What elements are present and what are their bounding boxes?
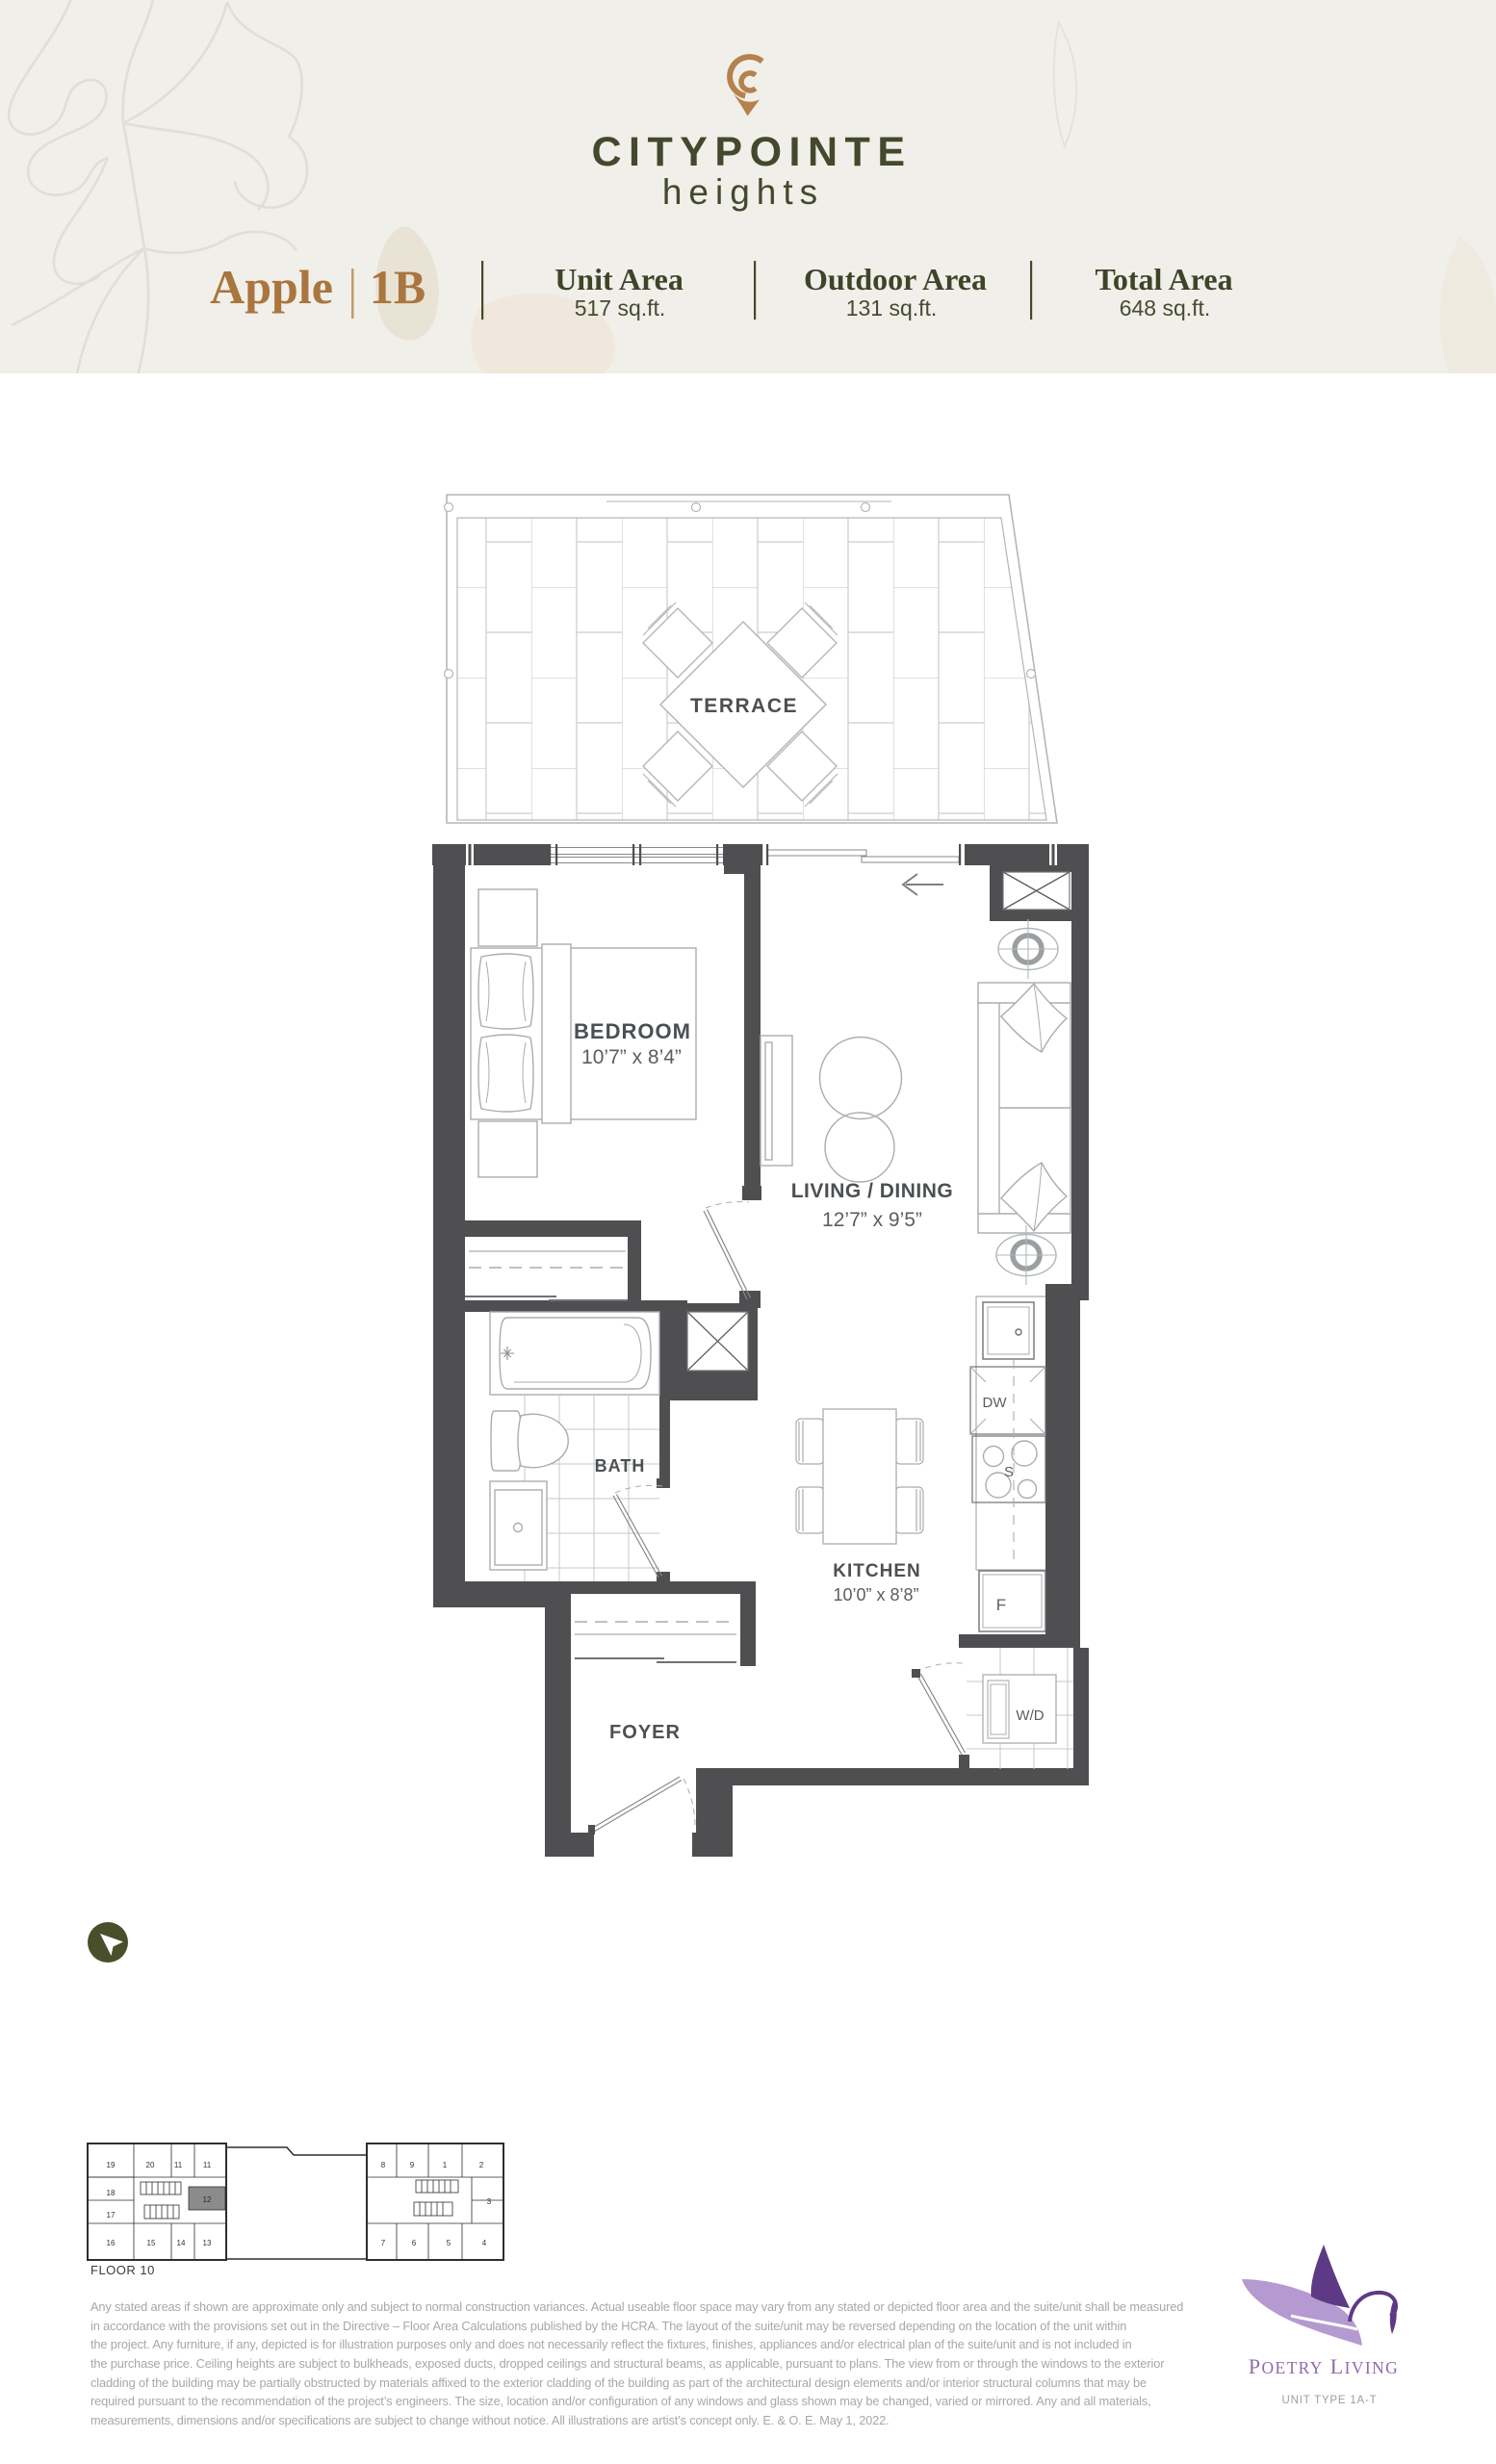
svg-text:LIVING / DINING: LIVING / DINING (791, 1180, 954, 1202)
svg-text:DW: DW (983, 1395, 1008, 1411)
svg-text:5: 5 (447, 2239, 451, 2247)
svg-text:cladding of the building may b: cladding of the building may be partiall… (90, 2375, 1147, 2390)
svg-text:2: 2 (479, 2161, 484, 2169)
svg-text:6: 6 (412, 2239, 417, 2247)
svg-text:CITYPOINTE: CITYPOINTE (591, 129, 912, 175)
svg-text:Unit Area: Unit Area (555, 262, 684, 296)
svg-text:BEDROOM: BEDROOM (574, 1019, 691, 1043)
svg-text:Total Area: Total Area (1095, 262, 1232, 296)
svg-text:Any stated areas if shown are: Any stated areas if shown are approximat… (90, 2299, 1183, 2314)
svg-text:9: 9 (410, 2161, 415, 2169)
svg-text:7: 7 (381, 2239, 386, 2247)
svg-text:in accordance with the provisi: in accordance with the provisions set ou… (90, 2319, 1126, 2333)
svg-text:F: F (996, 1596, 1006, 1614)
svg-text:UNIT TYPE 1A-T: UNIT TYPE 1A-T (1282, 2395, 1378, 2406)
svg-text:20: 20 (146, 2161, 155, 2169)
svg-text:16: 16 (107, 2239, 116, 2247)
svg-text:POETRY LIVING: POETRY LIVING (1249, 2354, 1399, 2378)
svg-text:the project. Any furniture, if: the project. Any furniture, if any, depi… (90, 2337, 1131, 2351)
svg-text:11: 11 (174, 2161, 183, 2169)
svg-text:1: 1 (443, 2161, 448, 2169)
svg-text:the purchase price. Ceiling he: the purchase price. Ceiling heights are … (90, 2356, 1165, 2371)
svg-text:FLOOR 10: FLOOR 10 (90, 2263, 155, 2277)
svg-text:15: 15 (147, 2239, 156, 2247)
svg-text:131 sq.ft.: 131 sq.ft. (846, 295, 938, 321)
svg-text:17: 17 (107, 2211, 116, 2220)
svg-text:measurements, dimensions and/o: measurements, dimensions and/or specific… (90, 2413, 890, 2427)
svg-text:12: 12 (203, 2195, 212, 2204)
svg-text:S: S (1004, 1464, 1014, 1480)
svg-text:18: 18 (107, 2189, 116, 2197)
svg-text:10’7” x 8’4”: 10’7” x 8’4” (581, 1046, 682, 1068)
svg-text:1B: 1B (370, 260, 426, 314)
svg-text:3: 3 (487, 2197, 492, 2206)
svg-text:8: 8 (381, 2161, 386, 2169)
svg-text:Apple: Apple (210, 260, 333, 314)
svg-text:4: 4 (482, 2239, 487, 2247)
svg-text:14: 14 (177, 2239, 186, 2247)
svg-text:12’7” x 9’5”: 12’7” x 9’5” (822, 1209, 922, 1231)
svg-text:19: 19 (107, 2161, 116, 2169)
svg-text:TERRACE: TERRACE (690, 695, 798, 717)
svg-text:FOYER: FOYER (609, 1722, 681, 1743)
svg-text:13: 13 (203, 2239, 212, 2247)
svg-text:10’0” x 8’8”: 10’0” x 8’8” (833, 1585, 918, 1604)
svg-text:BATH: BATH (595, 1456, 646, 1476)
svg-text:KITCHEN: KITCHEN (833, 1561, 920, 1581)
svg-text:required pursuant to the recom: required pursuant to the recommendation … (90, 2394, 1151, 2408)
svg-text:heights: heights (662, 172, 824, 212)
svg-text:Outdoor Area: Outdoor Area (804, 262, 987, 296)
svg-text:517 sq.ft.: 517 sq.ft. (575, 295, 666, 321)
svg-text:648 sq.ft.: 648 sq.ft. (1120, 295, 1211, 321)
svg-text:11: 11 (203, 2161, 212, 2169)
svg-text:W/D: W/D (1016, 1707, 1044, 1724)
